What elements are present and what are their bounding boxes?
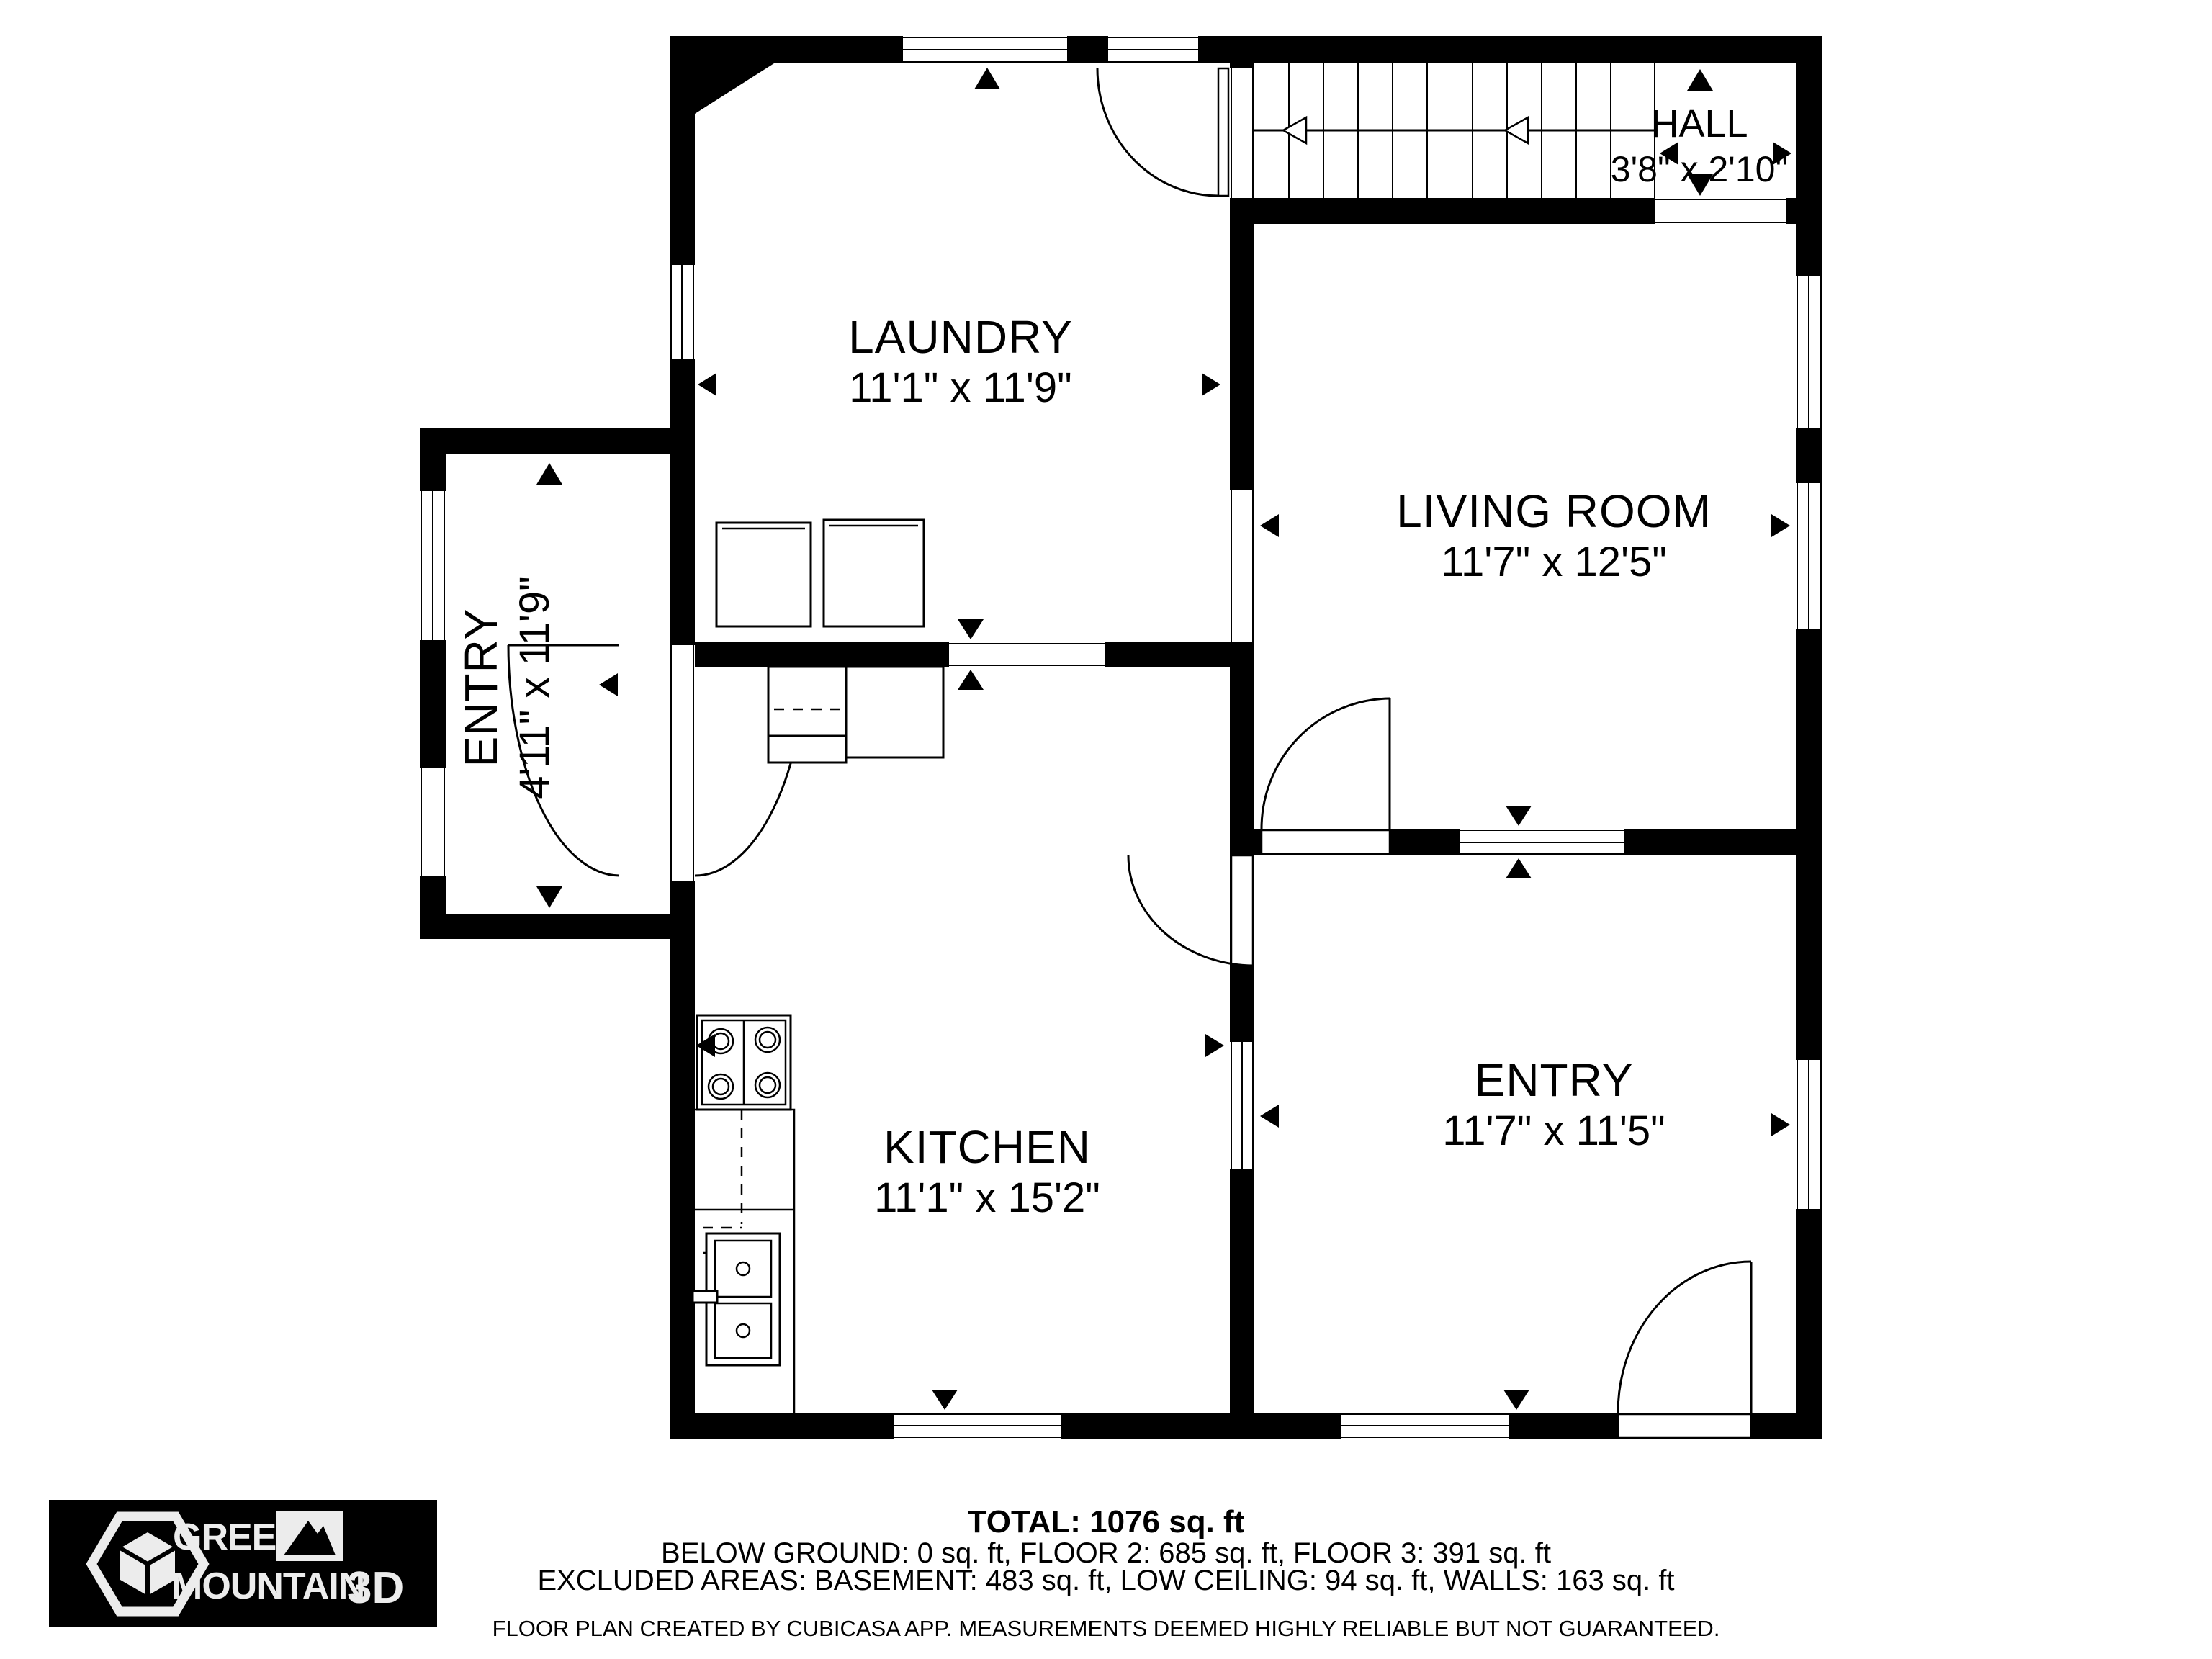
marker-living-left [1260, 514, 1279, 537]
floorplan-page: { "rooms": { "laundry": {"name": "LAUNDR… [0, 0, 2212, 1659]
window-living-east-upper [1796, 275, 1822, 428]
window-living-east-lower [1796, 482, 1822, 629]
laundry-label: LAUNDRY [848, 311, 1073, 363]
marker-top-window [974, 68, 1000, 89]
window-entry-south [1340, 1413, 1509, 1439]
opening-laundry-stairs [1230, 68, 1254, 198]
summary-total: TOTAL: 1076 sq. ft [968, 1504, 1245, 1539]
porch-entry-label: ENTRY [455, 608, 507, 768]
porch-entry-dims: 4'11" x 11'9" [511, 576, 558, 799]
entry-label: ENTRY [1475, 1054, 1634, 1106]
threshold-entry-door [1618, 1414, 1751, 1437]
marker-entry-window-down [1503, 1390, 1529, 1410]
kitchen-cabinets [768, 667, 943, 763]
opening-porch-west [420, 768, 446, 876]
threshold-kitchen-door [1231, 855, 1253, 966]
threshold-living-door [1262, 830, 1390, 854]
hall-label: HALL [1650, 102, 1748, 145]
stairs [1254, 63, 1655, 198]
marker-porch-down [536, 886, 562, 908]
washer-icon [716, 523, 811, 626]
opening-laundry-living [1230, 490, 1254, 642]
door-entry-south [1618, 1262, 1751, 1413]
marker-kitchen-window-down [932, 1390, 958, 1410]
marker-laundry-opening-down [958, 619, 984, 639]
window-living-entry-wall [1460, 829, 1625, 855]
stairs-arrow-2 [1505, 117, 1528, 143]
stove-icon [697, 1015, 791, 1110]
window-kitchen-entry-wall [1230, 1041, 1254, 1170]
wall-layer [420, 36, 1822, 1439]
marker-livingentry-window-up [1506, 858, 1532, 878]
entry-dims: 11'7" x 11'5" [1442, 1107, 1665, 1154]
marker-laundry-left [698, 373, 716, 396]
marker-layer [536, 68, 1791, 1410]
opening-layer [420, 68, 1786, 1437]
marker-entry-right [1771, 1113, 1790, 1136]
marker-porch-up [536, 463, 562, 485]
marker-laundry-opening-up [958, 670, 984, 690]
stairs-arrow-1 [1283, 117, 1306, 143]
marker-living-right [1771, 514, 1790, 537]
door-laundry-stairs [1097, 68, 1228, 196]
logo-word-3d: 3D [347, 1563, 404, 1613]
floorplan-canvas: LAUNDRY 11'1" x 11'9" LIVING ROOM 11'7" … [0, 0, 2212, 1659]
summary-excluded: EXCLUDED AREAS: BASEMENT: 483 sq. ft, LO… [537, 1565, 1674, 1596]
opening-porch-kitchen [670, 645, 695, 881]
kitchen-label: KITCHEN [884, 1121, 1091, 1173]
window-top-large [902, 36, 1068, 63]
window-top-small [1107, 36, 1199, 63]
marker-laundry-right [1202, 373, 1220, 396]
opening-laundry-kitchen [949, 642, 1105, 667]
door-living [1262, 698, 1390, 829]
logo-mountain-icon [276, 1511, 343, 1561]
summary-disclaimer: FLOOR PLAN CREATED BY CUBICASA APP. MEAS… [493, 1616, 1720, 1641]
living-room-label: LIVING ROOM [1396, 485, 1712, 537]
living-room-dims: 11'7" x 12'5" [1441, 539, 1667, 585]
window-porch-west [420, 490, 446, 641]
sink-icon [693, 1233, 780, 1365]
marker-entry-left [1260, 1105, 1279, 1128]
logo-word-mountain: MOUNTAIN [171, 1565, 364, 1607]
window-laundry-west [670, 264, 695, 360]
dryer-icon [824, 520, 924, 626]
window-entry-east [1796, 1059, 1822, 1210]
logo: GREEN MOUNTAIN 3D [49, 1500, 437, 1627]
kitchen-dims: 11'1" x 15'2" [874, 1174, 1100, 1221]
marker-kitchen-right [1205, 1034, 1224, 1057]
opening-hall-living [1655, 198, 1786, 224]
marker-livingentry-window-down [1506, 806, 1532, 826]
window-layer [420, 36, 1822, 1439]
window-kitchen-south [893, 1413, 1062, 1439]
marker-hall-up [1687, 69, 1713, 91]
laundry-dims: 11'1" x 11'9" [849, 364, 1071, 411]
hall-dims: 3'8" x 2'10" [1611, 149, 1788, 189]
summary-block: TOTAL: 1076 sq. ft BELOW GROUND: 0 sq. f… [493, 1504, 1720, 1641]
marker-porch-left [599, 673, 618, 696]
